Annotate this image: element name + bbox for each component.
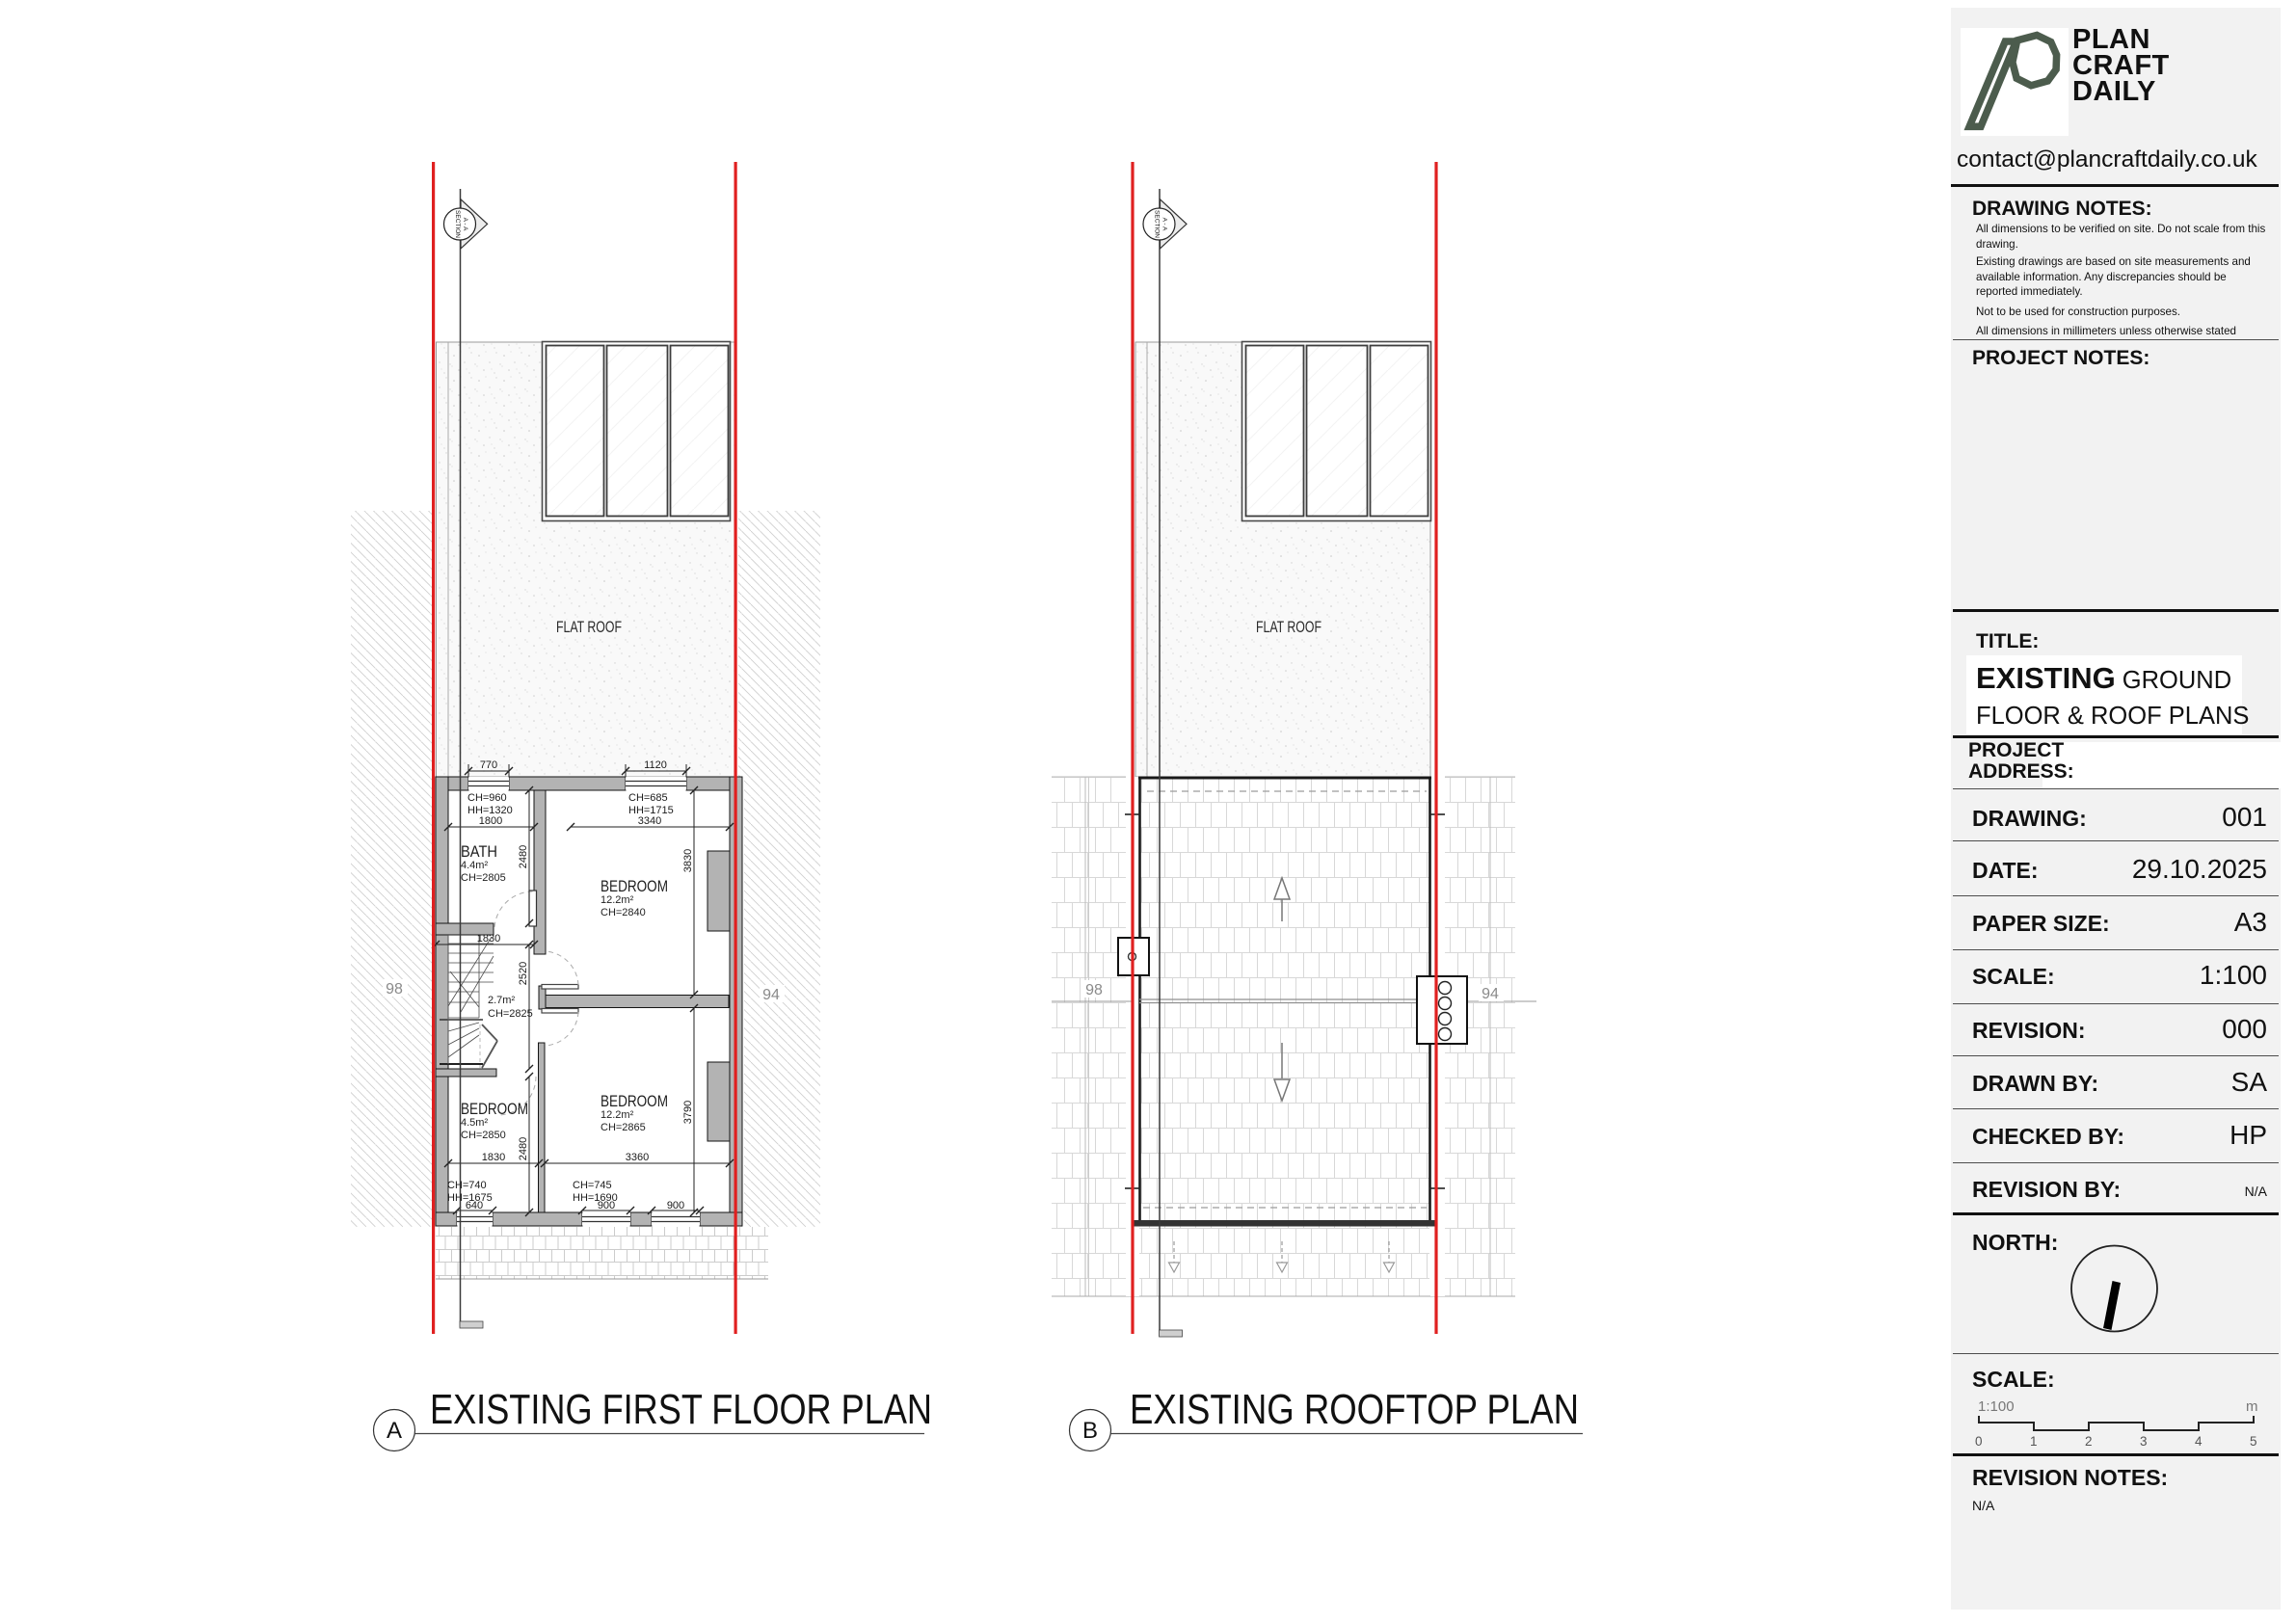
svg-text:2.7m²: 2.7m²	[488, 995, 515, 1006]
svg-text:CH=740: CH=740	[447, 1180, 487, 1191]
svg-text:CH=685: CH=685	[628, 792, 668, 804]
svg-text:3790: 3790	[682, 1101, 694, 1124]
svg-text:HH=1675: HH=1675	[447, 1192, 493, 1204]
svg-text:770: 770	[480, 759, 497, 771]
svg-text:SECTION: SECTION	[454, 210, 461, 238]
svg-text:1120: 1120	[644, 759, 667, 771]
svg-text:CH=2805: CH=2805	[461, 872, 506, 884]
svg-text:BATH: BATH	[461, 842, 497, 861]
svg-text:4.5m²: 4.5m²	[461, 1117, 488, 1129]
svg-text:CH=745: CH=745	[573, 1180, 612, 1191]
svg-text:1830: 1830	[482, 1152, 505, 1163]
svg-text:CH=2840: CH=2840	[601, 907, 646, 918]
svg-text:12.2m²: 12.2m²	[601, 1109, 634, 1121]
svg-text:EXISTING FIRST FLOOR PLAN: EXISTING FIRST FLOOR PLAN	[430, 1386, 932, 1433]
svg-text:BEDROOM: BEDROOM	[601, 877, 668, 895]
svg-text:B: B	[1082, 1418, 1098, 1444]
svg-text:3360: 3360	[626, 1152, 649, 1163]
svg-text:A: A	[387, 1418, 402, 1444]
svg-text:94: 94	[1482, 986, 1499, 1002]
svg-text:94: 94	[762, 987, 780, 1003]
svg-text:SECTION: SECTION	[1154, 210, 1161, 238]
svg-text:900: 900	[667, 1200, 684, 1211]
svg-text:EXISTING ROOFTOP PLAN: EXISTING ROOFTOP PLAN	[1130, 1386, 1579, 1433]
svg-text:BEDROOM: BEDROOM	[601, 1092, 668, 1110]
svg-text:FLAT ROOF: FLAT ROOF	[556, 619, 622, 636]
svg-text:2480: 2480	[518, 1137, 529, 1160]
svg-text:CH=2865: CH=2865	[601, 1122, 646, 1133]
svg-text:98: 98	[1085, 982, 1103, 998]
svg-text:HH=1320: HH=1320	[467, 805, 513, 816]
svg-text:FLAT ROOF: FLAT ROOF	[1256, 619, 1322, 636]
svg-text:A - A: A - A	[1161, 218, 1168, 231]
svg-text:A - A: A - A	[462, 218, 468, 231]
svg-text:12.2m²: 12.2m²	[601, 894, 634, 906]
svg-text:HH=1715: HH=1715	[628, 805, 674, 816]
svg-text:4.4m²: 4.4m²	[461, 860, 488, 871]
svg-text:2520: 2520	[518, 962, 529, 985]
svg-text:BEDROOM: BEDROOM	[461, 1100, 528, 1118]
svg-text:2480: 2480	[518, 845, 529, 868]
svg-text:CH=960: CH=960	[467, 792, 507, 804]
svg-text:HH=1690: HH=1690	[573, 1192, 618, 1204]
svg-text:1830: 1830	[477, 933, 500, 945]
svg-text:3340: 3340	[638, 815, 661, 827]
svg-text:98: 98	[386, 981, 403, 998]
svg-text:3830: 3830	[682, 849, 694, 872]
svg-text:CH=2850: CH=2850	[461, 1130, 506, 1141]
svg-text:1800: 1800	[479, 815, 502, 827]
svg-text:CH=2825: CH=2825	[488, 1008, 533, 1020]
